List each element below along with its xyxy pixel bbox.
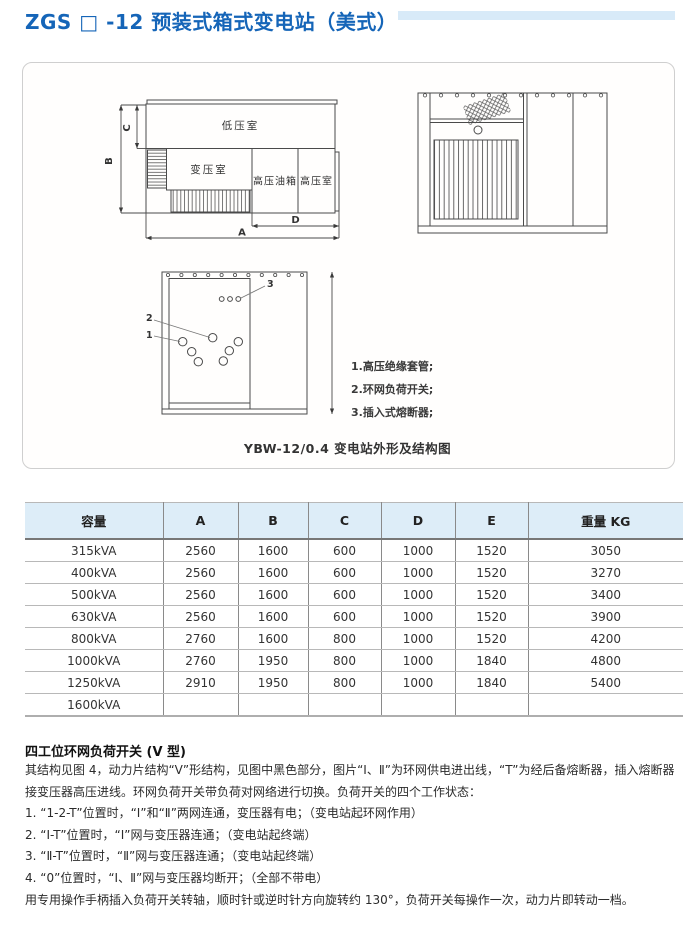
table-cell: 1000: [381, 606, 455, 628]
table-cell: [163, 694, 238, 717]
table-row: 1000kVA27601950800100018404800: [25, 650, 683, 672]
plan-left-vent-hatch: [148, 150, 167, 188]
header-dim-b: B: [238, 503, 308, 540]
table-cell: 1000kVA: [25, 650, 163, 672]
hv-bushing: [234, 338, 242, 346]
table-cell: 1600: [238, 562, 308, 584]
front-lock-handle: [474, 126, 482, 134]
legend-item-fuse: 3.插入式熔断器;: [351, 401, 433, 424]
table-cell: 1840: [455, 650, 528, 672]
table-cell: 1950: [238, 650, 308, 672]
table-cell: 500kVA: [25, 584, 163, 606]
plan-roof-lid: [147, 100, 337, 104]
header-dim-a: A: [163, 503, 238, 540]
table-cell: 2560: [163, 539, 238, 562]
table-cell: [455, 694, 528, 717]
table-cell: 1000: [381, 650, 455, 672]
hv-bushing: [219, 357, 227, 365]
switch-state-item: 3. “Ⅱ-T”位置时，“Ⅱ”网与变压器连通；（变电站起终端）: [25, 846, 681, 868]
table-cell: 1520: [455, 562, 528, 584]
table-cell: 400kVA: [25, 562, 163, 584]
table-row: 1600kVA: [25, 694, 683, 717]
header-capacity: 容量: [25, 503, 163, 540]
table-row: 500kVA25601600600100015203400: [25, 584, 683, 606]
dim-label-c: C: [122, 124, 133, 131]
table-cell: 3270: [528, 562, 683, 584]
table-cell: [238, 694, 308, 717]
table-cell: 1600: [238, 584, 308, 606]
callout-1: 1: [146, 330, 153, 341]
table-cell: 4200: [528, 628, 683, 650]
front-louver-panel: [434, 140, 518, 219]
table-cell: 800: [308, 672, 381, 694]
dimensions-table-wrap: 容量 A B C D E 重量 KG 315kVA256016006001000…: [25, 502, 683, 717]
table-cell: 2760: [163, 628, 238, 650]
table-cell: 2560: [163, 584, 238, 606]
structure-roof-bolts: [166, 273, 303, 276]
header-dim-c: C: [308, 503, 381, 540]
legend-item-switch: 2.环网负荷开关;: [351, 378, 433, 401]
table-cell: 1000: [381, 539, 455, 562]
header-dim-d: D: [381, 503, 455, 540]
table-cell: 1600: [238, 606, 308, 628]
table-cell: 5400: [528, 672, 683, 694]
table-cell: 1250kVA: [25, 672, 163, 694]
callout-leader-lines: [154, 286, 265, 342]
switch-state-item: 4. “0”位置时，“Ⅰ、Ⅱ”网与变压器均断开；（全部不带电）: [25, 868, 681, 890]
table-cell: [381, 694, 455, 717]
dim-label-b: B: [104, 157, 115, 165]
callout-3: 3: [267, 279, 274, 290]
fuse-bushing: [219, 297, 224, 302]
table-cell: 2910: [163, 672, 238, 694]
table-cell: 600: [308, 539, 381, 562]
hv-bushing: [225, 347, 233, 355]
table-cell: 600: [308, 584, 381, 606]
label-hv-room: 高压室: [300, 175, 333, 188]
table-row: 400kVA25601600600100015203270: [25, 562, 683, 584]
label-transformer-room: 变压室: [190, 163, 228, 176]
front-base: [418, 226, 607, 233]
table-cell: 1000: [381, 628, 455, 650]
label-low-voltage-room: 低压室: [222, 119, 260, 132]
table-cell: 2760: [163, 650, 238, 672]
plan-view-diagram: 低压室 变压室 高压油箱 高压室 B C D A: [100, 85, 360, 245]
table-header-row: 容量 A B C D E 重量 KG: [25, 503, 683, 540]
label-hv-oil-tank: 高压油箱: [253, 175, 297, 188]
legend-item-bushing: 1.高压绝缘套管;: [351, 355, 433, 378]
operation-paragraph: 用专用操作手柄插入负荷开关转轴，顺时针或逆时针方向旋转约 130°，负荷开关每操…: [25, 890, 681, 912]
table-cell: 2560: [163, 606, 238, 628]
table-cell: 315kVA: [25, 539, 163, 562]
table-cell: 1600kVA: [25, 694, 163, 717]
table-cell: 1520: [455, 606, 528, 628]
table-cell: 1600: [238, 628, 308, 650]
table-cell: 1950: [238, 672, 308, 694]
header-dim-e: E: [455, 503, 528, 540]
fuse-bushing: [236, 297, 241, 302]
plan-bottom-vent-hatch: [171, 190, 250, 212]
front-view-diagram: [400, 78, 635, 250]
table-cell: 4800: [528, 650, 683, 672]
switch-state-item: 2. “Ⅰ-T”位置时，“Ⅰ”网与变压器连通；（变电站起终端）: [25, 825, 681, 847]
table-cell: [528, 694, 683, 717]
plan-right-tab: [335, 152, 339, 211]
table-cell: 1520: [455, 539, 528, 562]
table-cell: 800: [308, 628, 381, 650]
structure-view-diagram: 3 2 1: [140, 258, 350, 438]
hv-bushing: [188, 348, 196, 356]
section-heading: 四工位环网负荷开关 (V 型): [25, 741, 186, 760]
table-cell: 3400: [528, 584, 683, 606]
table-row: 630kVA25601600600100015203900: [25, 606, 683, 628]
table-cell: 3050: [528, 539, 683, 562]
table-cell: 800kVA: [25, 628, 163, 650]
front-roof-bolts: [423, 94, 602, 97]
structure-inner-door: [169, 279, 250, 410]
table-row: 1250kVA29101950800100018405400: [25, 672, 683, 694]
switch-state-item: 1. “1-2-T”位置时，“Ⅰ”和“Ⅱ”两网连通，变压器有电；（变电站起环网作…: [25, 803, 681, 825]
hv-bushing: [194, 358, 202, 366]
table-cell: 1520: [455, 584, 528, 606]
figure-legend: 1.高压绝缘套管; 2.环网负荷开关; 3.插入式熔断器;: [351, 355, 433, 424]
table-row: 800kVA27601600800100015204200: [25, 628, 683, 650]
table-cell: 800: [308, 650, 381, 672]
table-cell: 630kVA: [25, 606, 163, 628]
dimensions-table: 容量 A B C D E 重量 KG 315kVA256016006001000…: [25, 502, 683, 717]
table-cell: 1000: [381, 672, 455, 694]
table-cell: 1000: [381, 562, 455, 584]
table-cell: [308, 694, 381, 717]
switch-section-text: 其结构见图 4，动力片结构“V”形结构，见图中黑色部分，图片“Ⅰ、Ⅱ”为环网供电…: [25, 760, 681, 911]
fuse-bushing: [228, 297, 233, 302]
page-title: ZGS □ -12 预装式箱式变电站（美式）: [25, 6, 397, 35]
dim-label-a: A: [238, 228, 246, 239]
table-cell: 1600: [238, 539, 308, 562]
table-cell: 600: [308, 606, 381, 628]
table-cell: 1840: [455, 672, 528, 694]
figure-caption: YBW-12/0.4 变电站外形及结构图: [22, 438, 673, 457]
table-row: 315kVA25601600600100015203050: [25, 539, 683, 562]
callout-2: 2: [146, 313, 153, 324]
table-cell: 600: [308, 562, 381, 584]
table-cell: 2560: [163, 562, 238, 584]
title-accent-bar: [398, 11, 675, 20]
front-vent-crosshatch: [463, 93, 511, 126]
header-weight: 重量 KG: [528, 503, 683, 540]
table-cell: 1520: [455, 628, 528, 650]
dim-label-d: D: [291, 215, 299, 226]
table-cell: 1000: [381, 584, 455, 606]
table-cell: 3900: [528, 606, 683, 628]
intro-paragraph: 其结构见图 4，动力片结构“V”形结构，见图中黑色部分，图片“Ⅰ、Ⅱ”为环网供电…: [25, 760, 681, 803]
